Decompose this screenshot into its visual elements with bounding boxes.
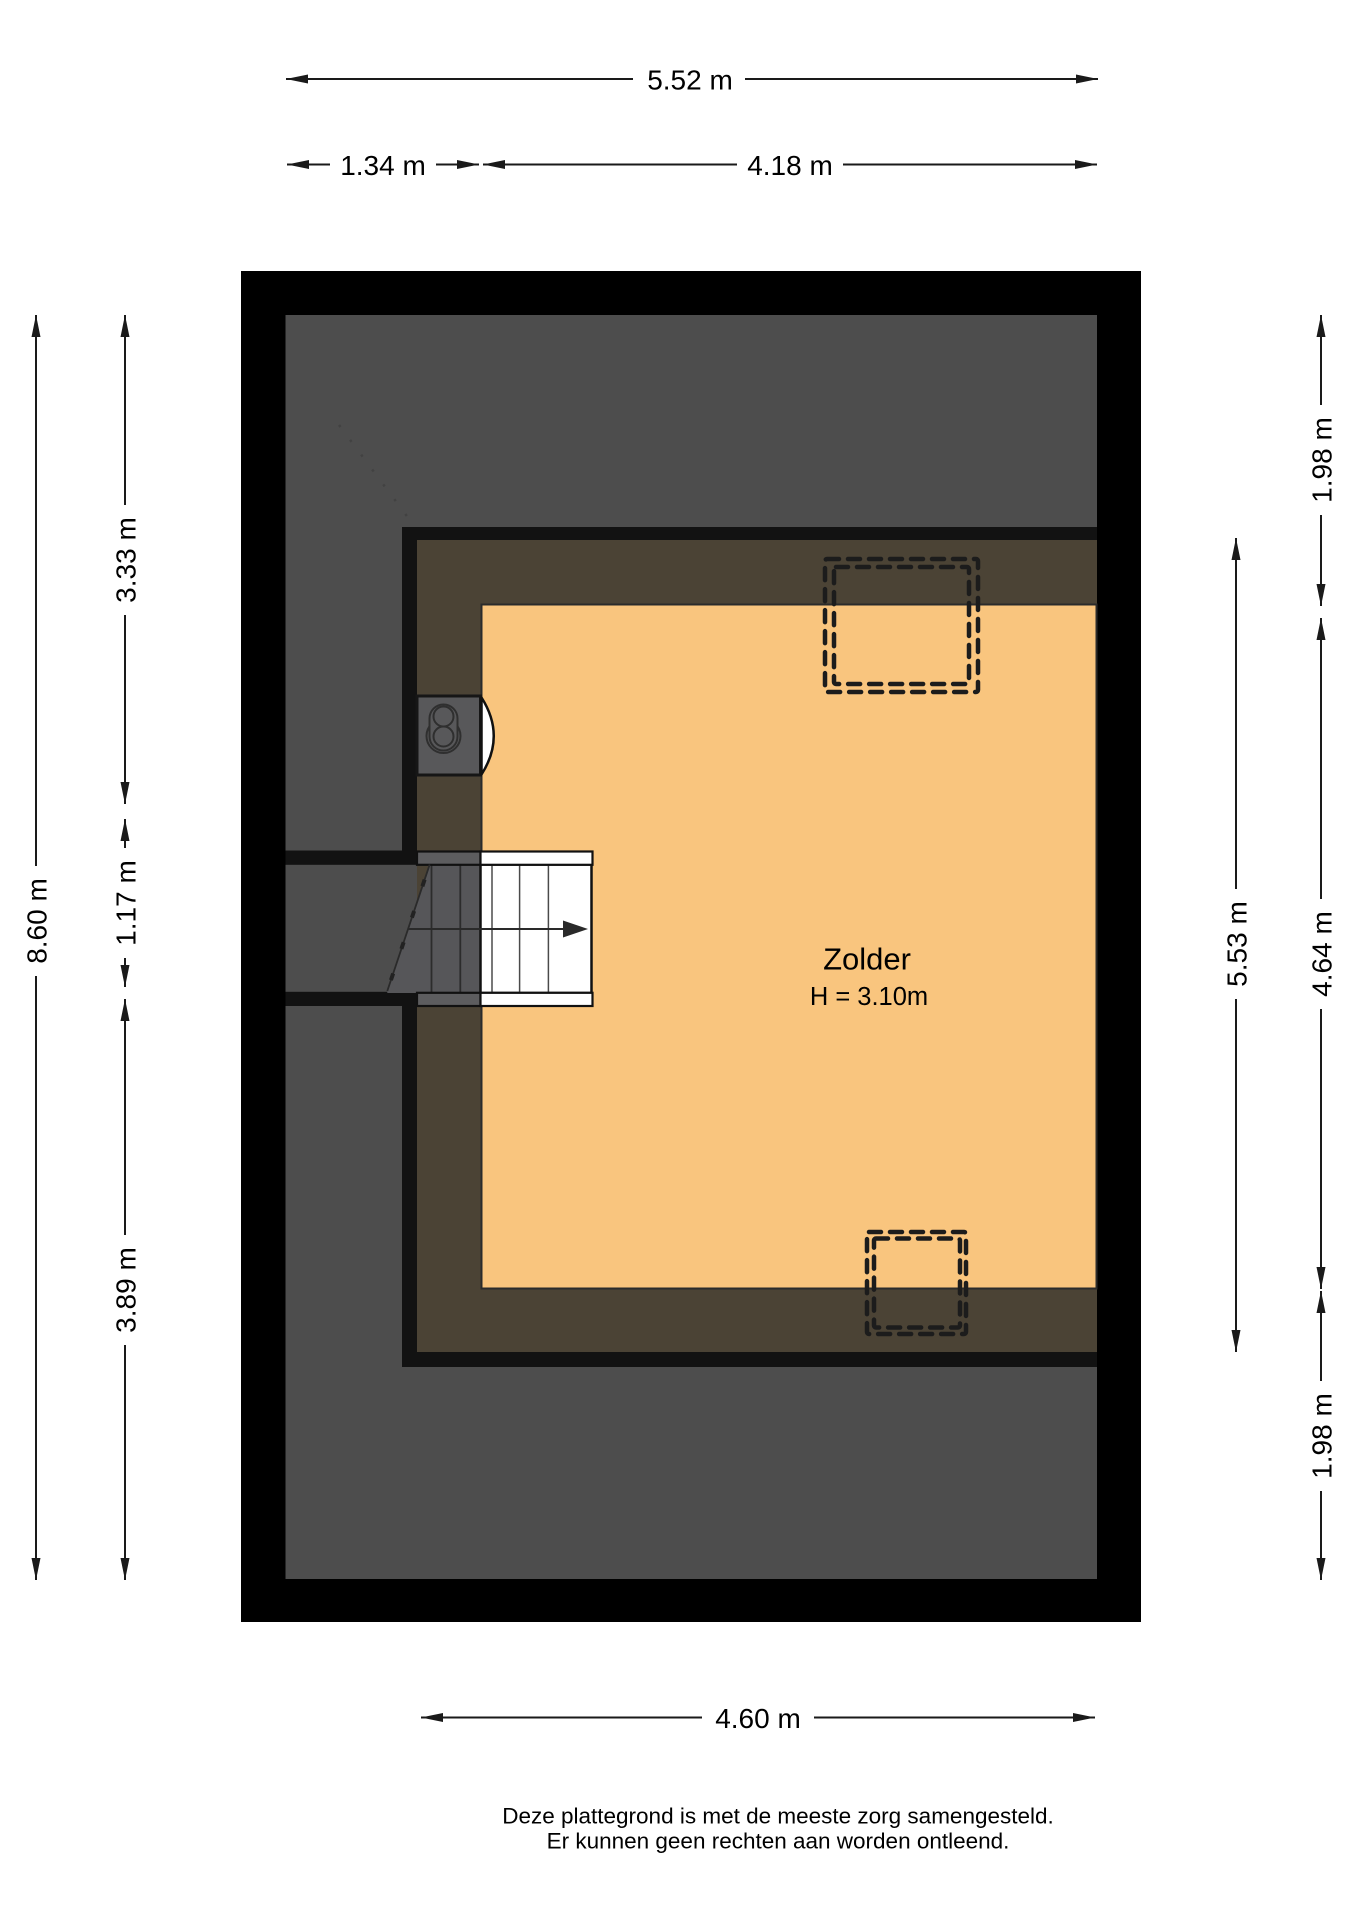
svg-text:Deze plattegrond is met de mee: Deze plattegrond is met de meeste zorg s… [502, 1804, 1054, 1829]
svg-text:Er kunnen geen rechten aan wor: Er kunnen geen rechten aan worden ontlee… [547, 1829, 1010, 1854]
svg-text:1.98 m: 1.98 m [1307, 1393, 1338, 1479]
svg-text:5.52 m: 5.52 m [647, 65, 733, 96]
svg-text:1.34 m: 1.34 m [340, 150, 426, 181]
svg-text:Zolder: Zolder [823, 942, 911, 977]
svg-text:1.98 m: 1.98 m [1307, 417, 1338, 503]
svg-text:4.60 m: 4.60 m [715, 1703, 801, 1734]
svg-text:8.60 m: 8.60 m [22, 878, 53, 964]
svg-text:3.89 m: 3.89 m [111, 1247, 142, 1333]
svg-text:3.33 m: 3.33 m [111, 517, 142, 603]
svg-text:4.18 m: 4.18 m [747, 150, 833, 181]
svg-text:4.64 m: 4.64 m [1307, 911, 1338, 997]
svg-text:5.53 m: 5.53 m [1222, 901, 1253, 987]
svg-text:1.17 m: 1.17 m [111, 860, 142, 946]
svg-text:H = 3.10m: H = 3.10m [810, 983, 928, 1011]
